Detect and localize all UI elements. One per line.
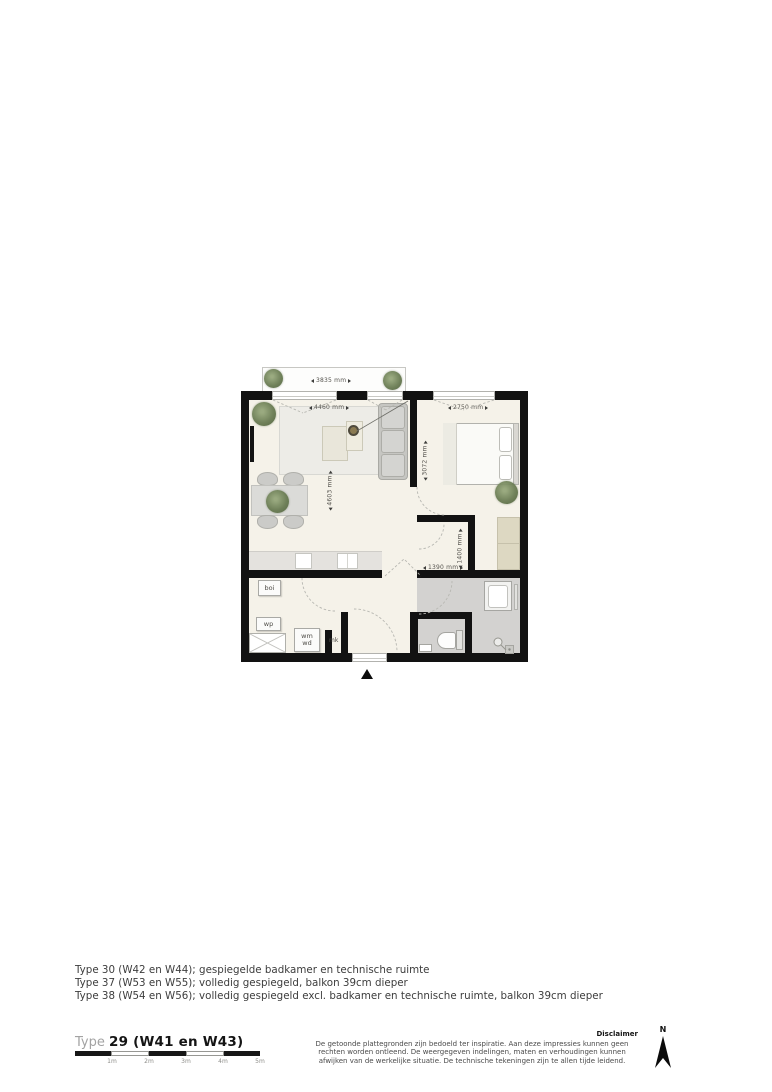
dining-chair [257, 515, 278, 529]
wall-right [520, 391, 528, 662]
dim-arrow-right-icon [423, 440, 427, 443]
sofa [378, 403, 408, 480]
disclaimer-body: De getoonde plattegronden zijn bedoeld t… [306, 1040, 638, 1066]
wall-left [241, 391, 249, 662]
kitchen-cooktop [337, 553, 358, 569]
dim-arrow-left-icon [423, 566, 426, 570]
wall-closet-top [417, 515, 475, 522]
wardrobe [497, 517, 520, 570]
dim-arrow-right-icon [348, 379, 351, 383]
scale-segment [149, 1051, 185, 1056]
disclaimer-title: Disclaimer [306, 1030, 638, 1039]
wall-living-bedroom [410, 400, 417, 487]
wall-wc-right [465, 612, 472, 653]
balcony-plant-left [264, 369, 283, 388]
wall-closet-right [468, 515, 475, 578]
scale-label: 1m [102, 1058, 122, 1065]
scale-bar [75, 1051, 260, 1056]
dim-arrow-left-icon [448, 406, 451, 410]
bedroom-plant [495, 481, 518, 504]
disclaimer: Disclaimer De getoonde plattegronden zij… [306, 1030, 638, 1065]
plan-type-title: Type 29 (W41 en W43) [75, 1034, 243, 1050]
window-bedroom [433, 391, 495, 400]
coffee-table [322, 426, 348, 461]
scale-label: 3m [176, 1058, 196, 1065]
entrance-arrow-icon [361, 669, 373, 679]
window-living-left [272, 391, 337, 400]
north-label: N [655, 1025, 671, 1034]
wall-kitchen-utility [249, 570, 382, 578]
dim-arrow-left-icon [328, 508, 332, 511]
dimension-bedroom-width: 2750 mm [448, 404, 488, 411]
shaft [249, 633, 286, 653]
dining-plant [266, 490, 289, 513]
bed-headboard [513, 423, 519, 485]
living-plant [252, 402, 276, 426]
dim-arrow-right-icon [458, 528, 462, 531]
dining-chair [283, 515, 304, 529]
dim-arrow-right-icon [328, 470, 332, 473]
dining-chair [283, 472, 304, 486]
toilet-tank [456, 630, 463, 650]
pillow [499, 455, 512, 480]
pendant-lamp [348, 425, 359, 436]
note-line: Type 37 (W53 en W55); volledig gespiegel… [75, 977, 603, 990]
meter-cupboard-label: mk [329, 637, 338, 644]
dimension-bedroom-depth: 3072 mm [422, 440, 429, 480]
bed-throw [443, 423, 457, 485]
note-line: Type 38 (W54 en W56); volledig gespiegel… [75, 990, 603, 1003]
scale-segment [75, 1051, 111, 1056]
dim-arrow-left-icon [458, 566, 462, 569]
dim-arrow-right-icon [346, 406, 349, 410]
scale-segment [224, 1051, 260, 1056]
scale-label: 5m [250, 1058, 270, 1065]
dimension-balcony-width: 3835 mm [311, 377, 351, 384]
heat-pump-box: wp [256, 617, 281, 631]
dim-arrow-right-icon [485, 406, 488, 410]
dim-arrow-left-icon [311, 379, 314, 383]
washer-dryer-box: wm wd [294, 628, 320, 652]
pillow [499, 427, 512, 452]
type-notes: Type 30 (W42 en W44); gespiegelde badkam… [75, 964, 603, 1004]
boiler-box: boi [258, 580, 281, 596]
dimension-living-width: 4460 mm [309, 404, 349, 411]
washbasin [484, 581, 512, 611]
tv [250, 426, 254, 462]
toilet-bowl [437, 632, 456, 649]
wall-wc-top [410, 612, 472, 619]
scale-segment [111, 1051, 149, 1056]
plan-type-value: 29 (W41 en W43) [109, 1034, 243, 1050]
wall-hall-utility [341, 612, 348, 653]
dining-chair [257, 472, 278, 486]
scale-segment [186, 1051, 224, 1056]
kitchen-sink [295, 553, 312, 569]
dim-arrow-left-icon [423, 478, 427, 481]
note-line: Type 30 (W42 en W44); gespiegelde badkam… [75, 964, 603, 977]
balcony-plant-right [383, 371, 402, 390]
wc-sink [419, 644, 432, 652]
window-living-right [367, 391, 403, 400]
scale-label: 2m [139, 1058, 159, 1065]
floorplan-page: 3835 mm [0, 0, 772, 1092]
dimension-living-depth: 4603 mm [327, 470, 334, 510]
scale-label: 4m [213, 1058, 233, 1065]
shower-drain [505, 645, 514, 654]
dimension-hall-depth: 1400 mm [457, 528, 464, 568]
mirror [514, 584, 518, 610]
entry-door-opening [352, 653, 387, 662]
kitchen-counter [249, 551, 382, 570]
dim-arrow-left-icon [309, 406, 312, 410]
